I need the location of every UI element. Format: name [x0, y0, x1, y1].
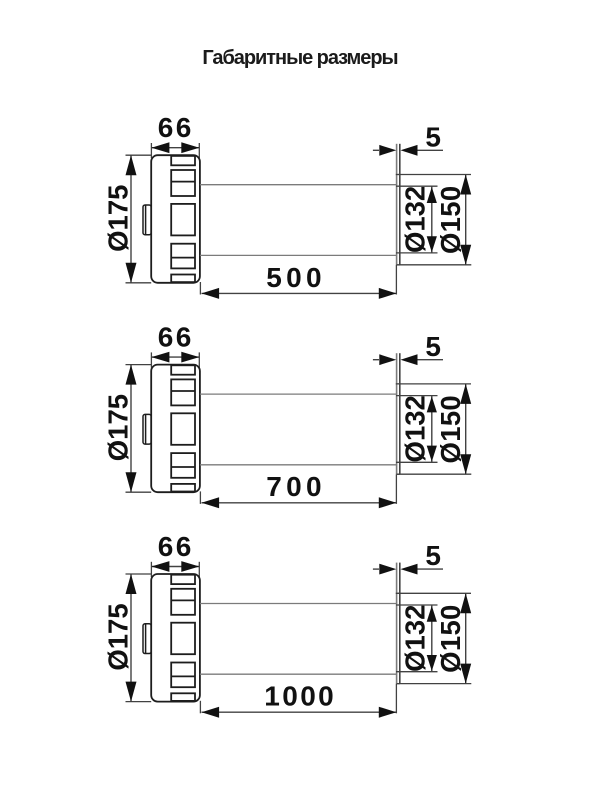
svg-text:Ø132: Ø132 — [400, 395, 431, 462]
svg-text:500: 500 — [266, 262, 326, 293]
svg-text:5: 5 — [425, 331, 441, 362]
svg-text:Габаритные размеры: Габаритные размеры — [202, 47, 397, 69]
svg-text:5: 5 — [425, 121, 441, 152]
svg-text:Ø175: Ø175 — [103, 185, 134, 252]
svg-text:700: 700 — [266, 471, 326, 502]
svg-text:Ø132: Ø132 — [400, 186, 431, 253]
svg-text:Ø175: Ø175 — [103, 603, 134, 670]
svg-text:1000: 1000 — [264, 681, 336, 712]
svg-text:5: 5 — [425, 540, 441, 571]
svg-text:Ø150: Ø150 — [435, 186, 466, 254]
svg-text:Ø150: Ø150 — [435, 395, 466, 463]
svg-text:Ø175: Ø175 — [103, 394, 134, 461]
svg-text:66: 66 — [158, 112, 194, 143]
svg-text:Ø132: Ø132 — [400, 605, 431, 672]
svg-text:Ø150: Ø150 — [435, 604, 466, 672]
svg-text:66: 66 — [158, 531, 194, 562]
svg-text:66: 66 — [158, 322, 194, 353]
